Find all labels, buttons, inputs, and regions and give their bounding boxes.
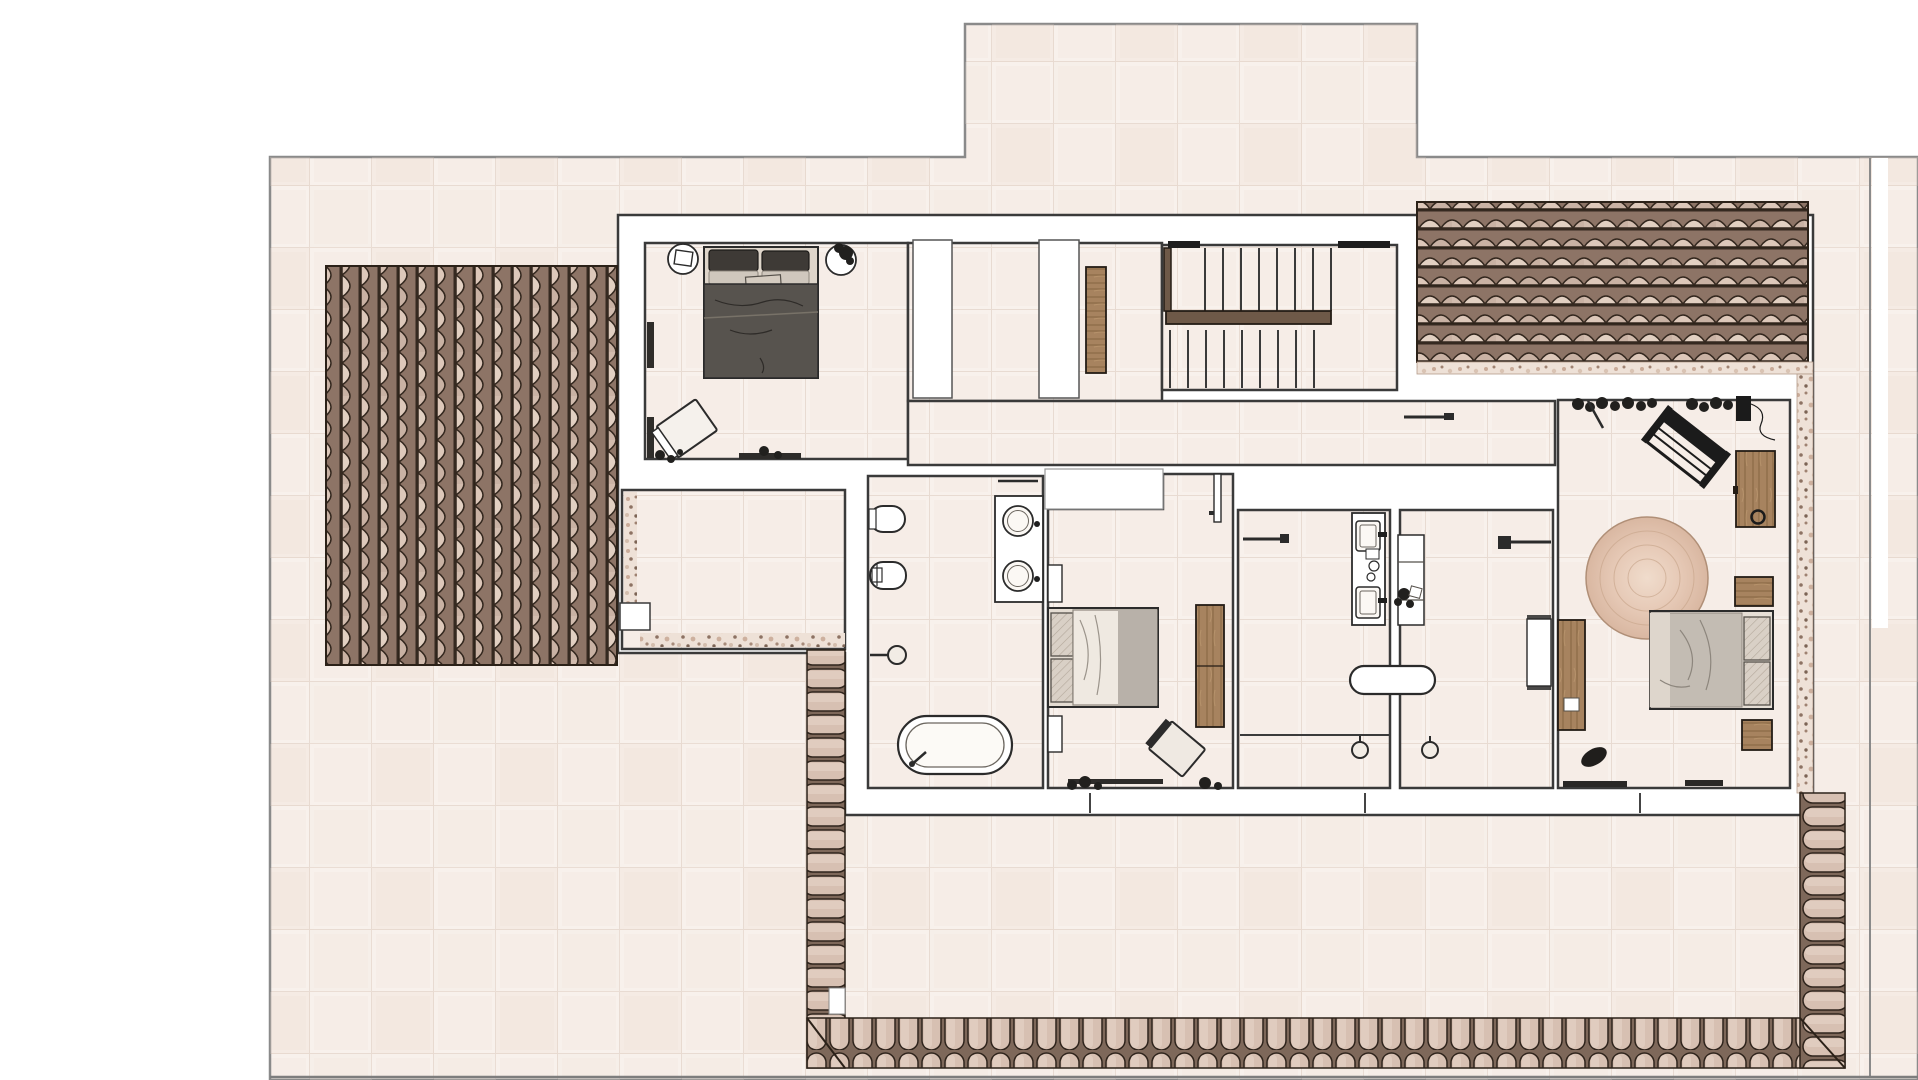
master-bed-pillow-1: [1744, 617, 1770, 660]
floor-plan-svg: [0, 0, 1918, 1080]
stair-void-2: [1039, 240, 1079, 398]
vanity-accessory-dish: [1366, 549, 1379, 559]
bed2-grey-panel: [1118, 610, 1157, 705]
faucet-sq-2: [1378, 598, 1387, 603]
faucet-sq-1: [1378, 532, 1387, 537]
master-desk-knob: [1733, 486, 1738, 494]
bathtub-faucet-dot: [909, 761, 915, 767]
vanity-bath3: [1398, 535, 1424, 625]
toilet-tank: [869, 509, 876, 529]
bath3-door-leaf: [1527, 619, 1551, 686]
shower-head-2-bath3: [1422, 742, 1438, 758]
faucet-2: [1034, 576, 1040, 582]
vanity-bath3-note: [1409, 586, 1422, 599]
eave-strip-bottom: [807, 1018, 1845, 1068]
annex-gravel-bottom: [640, 633, 845, 647]
terrace-right-gap: [1872, 158, 1888, 628]
walkthrough-tub: [1350, 666, 1435, 694]
bedroom-2-closet-notch: [1045, 469, 1163, 509]
eave-drain-notch: [829, 988, 845, 1014]
annex-door-panel: [620, 603, 650, 630]
wall-radiator-2: [647, 417, 654, 458]
bed2-nightstand-a: [1048, 565, 1062, 602]
bedroom2-door-handle: [1209, 511, 1214, 515]
bed1-duvet: [704, 284, 818, 378]
master-speaker: [1736, 396, 1751, 421]
annex-gravel-left: [624, 492, 637, 608]
gravel-border-roof-bottom: [1417, 362, 1813, 374]
bed1-pillow-dark-1: [709, 250, 758, 271]
master-bed-pillow-2: [1744, 662, 1770, 705]
bed2-pillow-2: [1051, 659, 1073, 702]
stair-void-1: [913, 240, 952, 398]
bed1-pillow-dark-2: [762, 251, 809, 271]
vanity-accessory-jar-2: [1367, 573, 1375, 581]
bathtub-inner: [906, 723, 1004, 767]
master-sideboard-clock: [1564, 698, 1579, 711]
shower-head-bath1: [888, 646, 906, 664]
roof-top-right: [1417, 202, 1808, 362]
towel-rod-bath2-end: [1280, 534, 1289, 543]
floor-annex-terrace: [622, 490, 845, 649]
master-mat-2: [1685, 780, 1723, 786]
bedroom2-door-leaf: [1214, 474, 1221, 522]
master-mat-1: [1563, 781, 1627, 787]
floor-hall-band: [908, 401, 1555, 465]
hall-bench: [1086, 267, 1106, 373]
vanity-accessory-jar-1: [1369, 561, 1379, 571]
master-bed-box: [1742, 720, 1772, 750]
bath3-door-hinge-top: [1527, 615, 1551, 619]
bed2-pillow-1: [1051, 613, 1073, 656]
master-bed-sheet-fold: [1650, 613, 1670, 707]
master-nightstand: [1735, 577, 1773, 606]
roof-left: [326, 266, 617, 665]
nightstand-left-lamp: [674, 250, 693, 266]
floor-plan-page: [0, 0, 1918, 1080]
gravel-border-right: [1797, 374, 1813, 793]
master-desk: [1736, 451, 1775, 527]
stair-handrail-left: [1164, 248, 1171, 311]
wall-radiator-1: [647, 322, 654, 368]
shower-head-bath2: [1352, 742, 1368, 758]
master-sideboard: [1558, 620, 1585, 730]
stair-door-mark-1: [1168, 241, 1200, 248]
faucet-1: [1034, 521, 1040, 527]
shower-head-sq-bath3: [1498, 536, 1511, 549]
bath3-door-hinge-bottom: [1527, 686, 1551, 690]
stair-door-mark-2: [1338, 241, 1390, 248]
bed2-nightstand-b: [1048, 716, 1062, 752]
hall-towel-rod-end: [1444, 413, 1454, 420]
stair-handrail: [1166, 311, 1331, 324]
bedroom1-doormat: [739, 453, 801, 459]
bidet: [870, 562, 906, 589]
